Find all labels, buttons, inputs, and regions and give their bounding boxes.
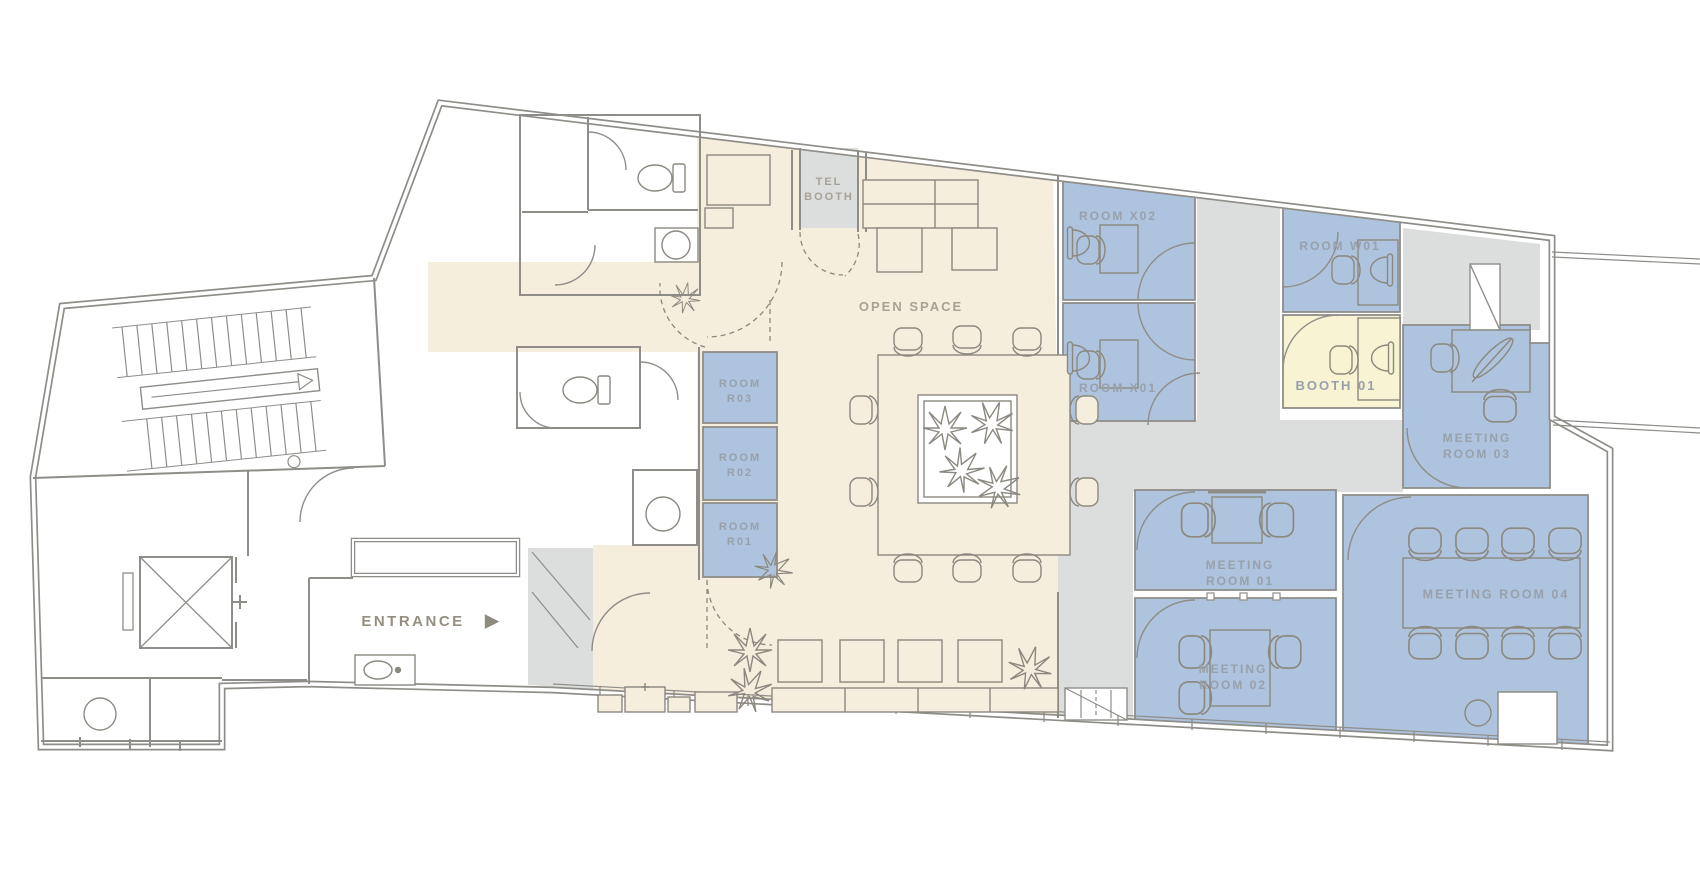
entrance-arrow-icon: ▶: [485, 610, 500, 633]
floor-plan-drawing: [0, 0, 1700, 893]
elevator: [123, 557, 232, 648]
staircase: [112, 307, 327, 485]
room-r03-area: [703, 352, 777, 423]
tel-booth-area: [800, 148, 858, 228]
room-r01-area: [703, 503, 777, 577]
floor-plan-page: TELBOOTHOPEN SPACEROOM X02ROOM X01ROOM W…: [0, 0, 1700, 893]
room-r02-area: [703, 427, 777, 500]
